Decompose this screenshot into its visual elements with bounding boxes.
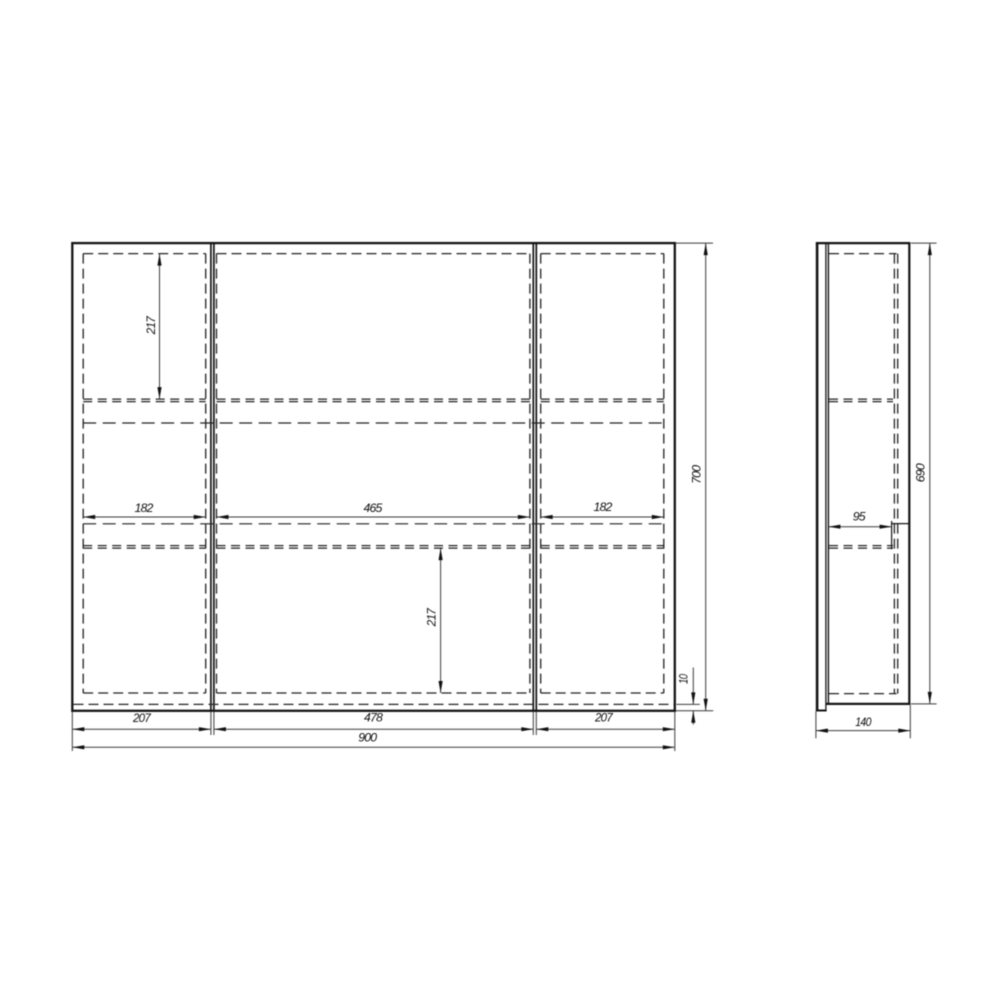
svg-text:700: 700 bbox=[690, 465, 704, 484]
svg-text:140: 140 bbox=[855, 715, 871, 729]
svg-text:10: 10 bbox=[677, 674, 691, 684]
svg-text:217: 217 bbox=[144, 315, 158, 335]
svg-text:207: 207 bbox=[594, 711, 614, 725]
svg-text:207: 207 bbox=[132, 711, 152, 725]
svg-text:182: 182 bbox=[134, 501, 153, 515]
svg-text:182: 182 bbox=[593, 500, 612, 514]
svg-text:217: 217 bbox=[424, 607, 438, 627]
svg-text:900: 900 bbox=[358, 730, 377, 744]
svg-text:690: 690 bbox=[914, 463, 928, 482]
svg-text:465: 465 bbox=[363, 501, 382, 515]
svg-text:95: 95 bbox=[853, 510, 866, 524]
svg-text:478: 478 bbox=[364, 710, 383, 724]
